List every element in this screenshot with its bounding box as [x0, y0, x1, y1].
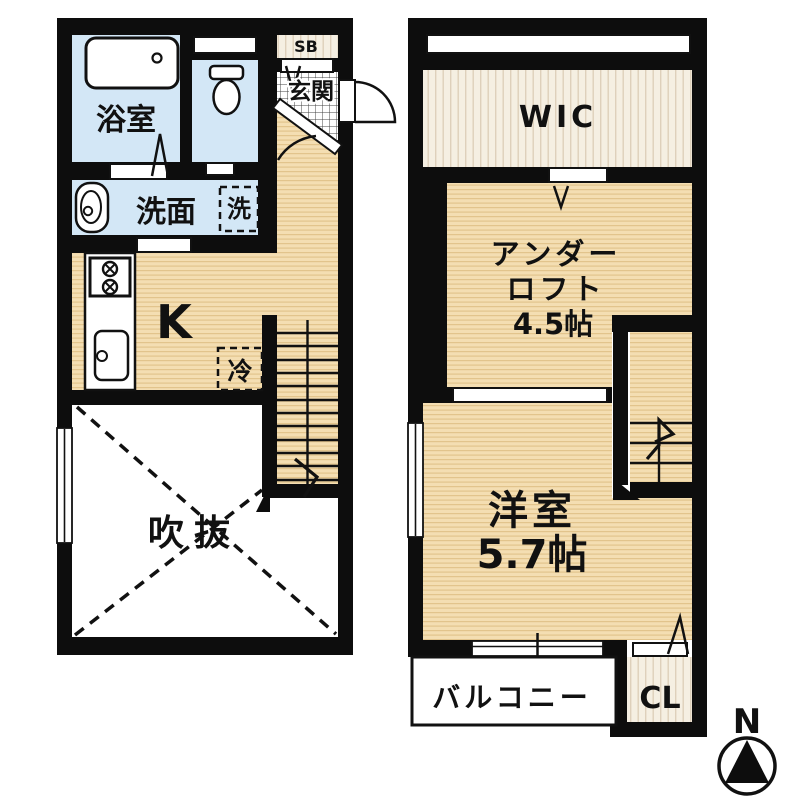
under-loft-opening [453, 388, 607, 402]
wall [630, 482, 692, 498]
wall [408, 18, 423, 657]
front-door-arc [355, 82, 395, 122]
balcony-label: バルコニー [432, 681, 591, 714]
washroom-label: 洗面 [136, 195, 196, 230]
wall [692, 18, 707, 737]
bath-door-opening [110, 164, 167, 179]
wall [57, 637, 353, 655]
wall [72, 390, 262, 405]
western-room-size-label: 5.7帖 [477, 532, 588, 578]
washer-label: 洗 [227, 195, 251, 223]
shoe-box-opening [281, 59, 333, 72]
void-label: 吹抜 [148, 513, 240, 554]
north-compass: N [719, 702, 775, 794]
stairs2-floor [630, 332, 692, 484]
under-loft-label-2: ロフト [506, 272, 605, 306]
bath-label: 浴室 [96, 103, 156, 138]
shoe-box-label: SB [294, 37, 318, 56]
front-door-leaf [339, 80, 355, 122]
wall [258, 35, 277, 253]
wall [610, 722, 707, 737]
entrance-label: 玄関 [288, 78, 334, 105]
toilet-bowl-icon [214, 80, 240, 114]
under-loft-size-label: 4.5帖 [513, 307, 593, 341]
closet-door-opening [633, 643, 687, 656]
floor1-plan: 浴室 洗面 洗 SB 玄関 K 冷 吹抜 [57, 18, 395, 655]
sink-drain-icon [97, 351, 107, 361]
toilet-tank-icon [210, 66, 243, 79]
washbasin-drain-icon [84, 207, 92, 215]
wall [72, 162, 277, 180]
top-window-slot [427, 35, 690, 53]
kitchen-label: K [156, 295, 194, 349]
wall [57, 18, 72, 655]
bathtub-drain-icon [153, 54, 162, 63]
wall [57, 18, 353, 35]
fridge-label: 冷 [227, 357, 252, 386]
floor2-plan: WIC アンダー ロフト 4.5帖 洋室 5.7帖 バルコニー CL [408, 18, 707, 737]
bathtub-icon [86, 38, 178, 88]
wall [180, 35, 192, 162]
western-room-label: 洋室 [488, 488, 576, 534]
north-arrow-icon [725, 740, 769, 783]
washroom-door-opening [137, 238, 191, 252]
floor-plan-svg: 浴室 洗面 洗 SB 玄関 K 冷 吹抜 [0, 0, 800, 800]
floor-plan-image: 浴室 洗面 洗 SB 玄関 K 冷 吹抜 [0, 0, 800, 800]
toilet-door-opening [206, 163, 234, 175]
wic-door-opening [549, 168, 607, 182]
under-loft-label-1: アンダー [491, 237, 622, 271]
wall [262, 315, 277, 497]
closet-label: CL [639, 681, 680, 716]
toilet-window [194, 37, 256, 53]
wall [613, 315, 628, 485]
north-label: N [733, 702, 761, 742]
wall [423, 183, 447, 403]
wic-label: WIC [519, 100, 597, 135]
